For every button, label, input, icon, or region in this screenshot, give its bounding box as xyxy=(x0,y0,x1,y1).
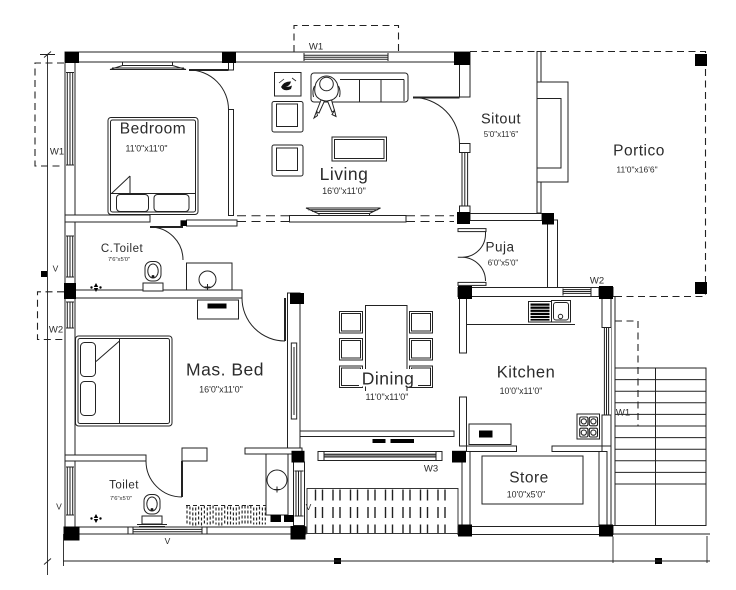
svg-text:10'0"x5'0": 10'0"x5'0" xyxy=(507,490,545,500)
svg-text:Toilet: Toilet xyxy=(109,480,139,492)
svg-text:Sitout: Sitout xyxy=(481,112,521,128)
svg-text:Store: Store xyxy=(509,470,549,487)
svg-text:Dining: Dining xyxy=(362,369,415,389)
svg-text:W3: W3 xyxy=(424,464,438,475)
svg-text:11'0"x11'0": 11'0"x11'0" xyxy=(365,392,408,402)
svg-text:Mas. Bed: Mas. Bed xyxy=(186,360,264,380)
svg-text:16'0"x11'0": 16'0"x11'0" xyxy=(322,186,366,196)
svg-text:7'6"x5'0": 7'6"x5'0" xyxy=(108,257,130,263)
svg-text:W2: W2 xyxy=(590,276,604,287)
svg-text:V: V xyxy=(165,536,171,546)
svg-text:W1: W1 xyxy=(50,147,64,158)
svg-text:W2: W2 xyxy=(49,325,63,336)
svg-text:Living: Living xyxy=(320,164,369,184)
svg-text:Puja: Puja xyxy=(485,240,514,255)
svg-text:11'0"x16'6": 11'0"x16'6" xyxy=(616,165,657,175)
svg-text:V: V xyxy=(56,502,62,512)
svg-text:C.Toilet: C.Toilet xyxy=(101,243,144,255)
svg-text:V: V xyxy=(53,264,59,274)
svg-text:V: V xyxy=(306,502,312,512)
svg-text:10'0"x11'0": 10'0"x11'0" xyxy=(500,386,543,396)
svg-text:W1: W1 xyxy=(309,42,323,53)
svg-text:5'0"x11'6": 5'0"x11'6" xyxy=(484,130,519,139)
svg-text:7'6"x5'0": 7'6"x5'0" xyxy=(110,496,132,502)
svg-text:W1: W1 xyxy=(616,408,630,419)
svg-text:16'0"x11'0": 16'0"x11'0" xyxy=(199,385,243,395)
svg-text:6'0"x5'0": 6'0"x5'0" xyxy=(488,259,519,268)
svg-text:11'0"x11'0": 11'0"x11'0" xyxy=(125,144,167,154)
svg-text:Bedroom: Bedroom xyxy=(120,121,186,138)
svg-text:Portico: Portico xyxy=(613,143,665,160)
svg-text:Kitchen: Kitchen xyxy=(497,364,556,382)
